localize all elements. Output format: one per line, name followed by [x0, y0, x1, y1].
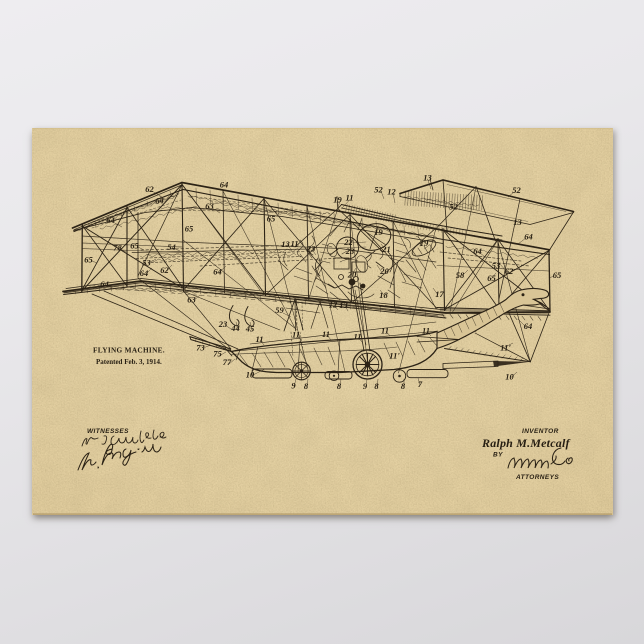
svg-text:18: 18 — [379, 290, 388, 300]
svg-text:19: 19 — [374, 227, 383, 237]
svg-text:44: 44 — [230, 323, 240, 333]
svg-text:58: 58 — [456, 270, 465, 280]
svg-text:11: 11 — [345, 193, 353, 203]
svg-text:11: 11 — [381, 326, 389, 336]
svg-text:11: 11 — [422, 326, 430, 336]
svg-text:65: 65 — [487, 273, 496, 283]
svg-text:52: 52 — [512, 185, 521, 195]
svg-text:65: 65 — [130, 241, 139, 251]
svg-text:64: 64 — [524, 321, 533, 331]
svg-text:11: 11 — [292, 330, 300, 340]
svg-text:64: 64 — [140, 268, 149, 278]
svg-text:BY: BY — [493, 452, 503, 459]
svg-text:54: 54 — [167, 242, 176, 252]
svg-text:10: 10 — [505, 372, 514, 382]
svg-text:64: 64 — [213, 267, 222, 277]
svg-text:21: 21 — [381, 244, 391, 254]
svg-text:75: 75 — [213, 349, 222, 359]
svg-text:23: 23 — [345, 246, 355, 256]
svg-text:62: 62 — [160, 265, 169, 275]
svg-text:73: 73 — [196, 343, 205, 353]
svg-text:53: 53 — [492, 261, 501, 271]
svg-text:FLYING MACHINE.: FLYING MACHINE. — [93, 346, 165, 355]
svg-text:12: 12 — [329, 300, 338, 310]
svg-text:62: 62 — [145, 184, 154, 194]
svg-text:64: 64 — [155, 196, 164, 206]
svg-text:77: 77 — [223, 357, 232, 367]
svg-text:12: 12 — [387, 187, 396, 197]
svg-text:65: 65 — [553, 270, 562, 280]
svg-text:11': 11' — [500, 343, 511, 353]
svg-text:20: 20 — [379, 266, 389, 276]
svg-text:62: 62 — [505, 266, 514, 276]
svg-text:WITNESSES: WITNESSES — [87, 428, 129, 435]
svg-text:52: 52 — [449, 202, 458, 212]
svg-text:78: 78 — [113, 243, 122, 253]
svg-text:Patented Feb. 3, 1914.: Patented Feb. 3, 1914. — [96, 358, 162, 366]
svg-text:13: 13 — [281, 239, 290, 249]
svg-text:13: 13 — [423, 173, 432, 183]
svg-text:64: 64 — [220, 180, 229, 190]
svg-text:11: 11 — [255, 334, 263, 344]
svg-text:64: 64 — [524, 232, 533, 242]
svg-text:13: 13 — [513, 217, 522, 227]
svg-text:52: 52 — [374, 185, 383, 195]
svg-text:Ralph M.Metcalf: Ralph M.Metcalf — [481, 436, 570, 450]
svg-text:11: 11 — [290, 239, 298, 249]
svg-text:10: 10 — [246, 370, 255, 380]
svg-text:11: 11 — [353, 332, 361, 342]
svg-text:23: 23 — [218, 319, 228, 329]
svg-text:11': 11' — [389, 351, 400, 361]
svg-text:19: 19 — [420, 238, 429, 248]
svg-text:65: 65 — [267, 214, 276, 224]
svg-text:11: 11 — [322, 329, 330, 339]
svg-text:64: 64 — [473, 246, 482, 256]
svg-text:INVENTOR: INVENTOR — [522, 428, 559, 435]
svg-text:45: 45 — [245, 324, 255, 334]
svg-text:13: 13 — [339, 300, 348, 310]
svg-text:20: 20 — [347, 270, 357, 280]
svg-text:64: 64 — [106, 215, 115, 225]
svg-text:65: 65 — [84, 255, 93, 265]
svg-text:63: 63 — [205, 201, 214, 211]
svg-text:ATTORNEYS: ATTORNEYS — [515, 474, 559, 481]
svg-text:19: 19 — [333, 195, 342, 205]
svg-text:64: 64 — [100, 279, 109, 289]
svg-text:53: 53 — [142, 258, 151, 268]
svg-text:17: 17 — [435, 289, 444, 299]
svg-text:59: 59 — [275, 305, 284, 315]
svg-text:65: 65 — [185, 224, 194, 234]
svg-text:23: 23 — [306, 244, 316, 254]
svg-text:63: 63 — [187, 295, 196, 305]
